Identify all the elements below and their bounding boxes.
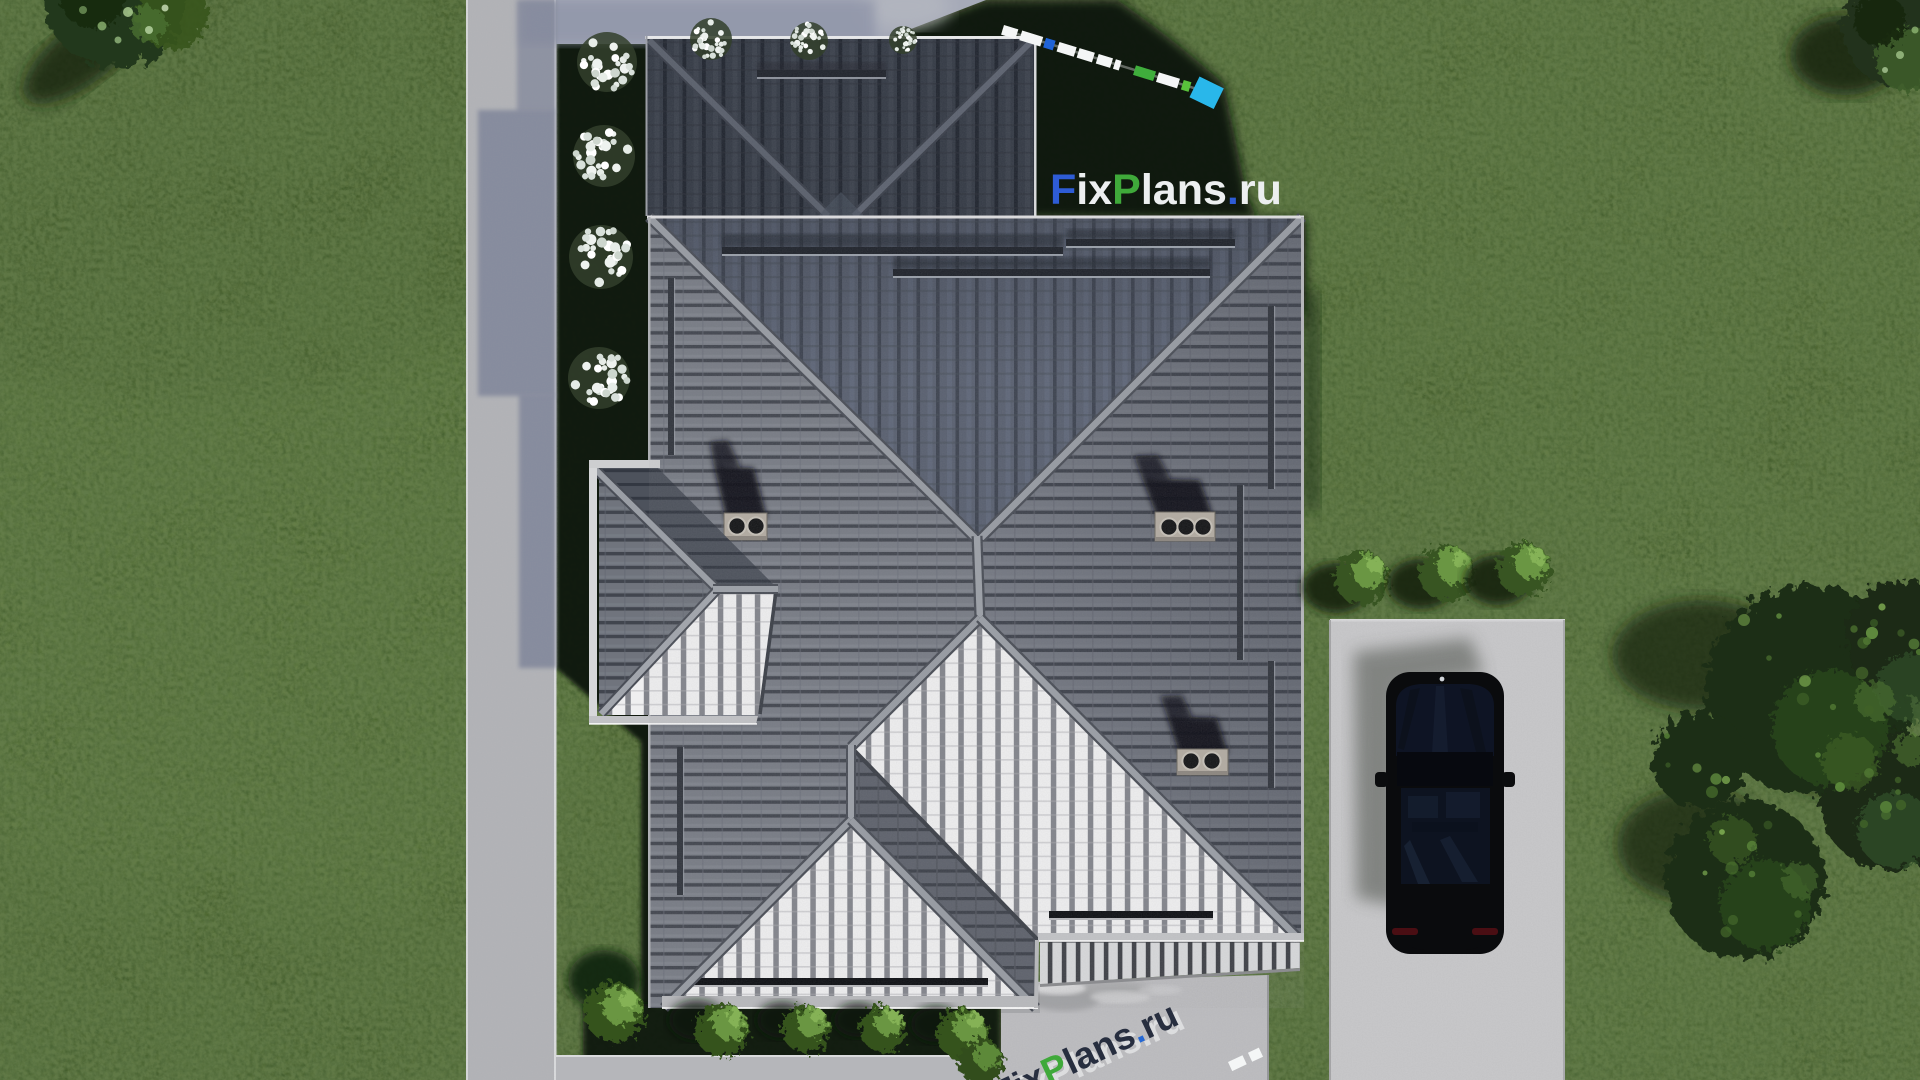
svg-text:FixPlans.ru: FixPlans.ru: [1050, 166, 1282, 214]
